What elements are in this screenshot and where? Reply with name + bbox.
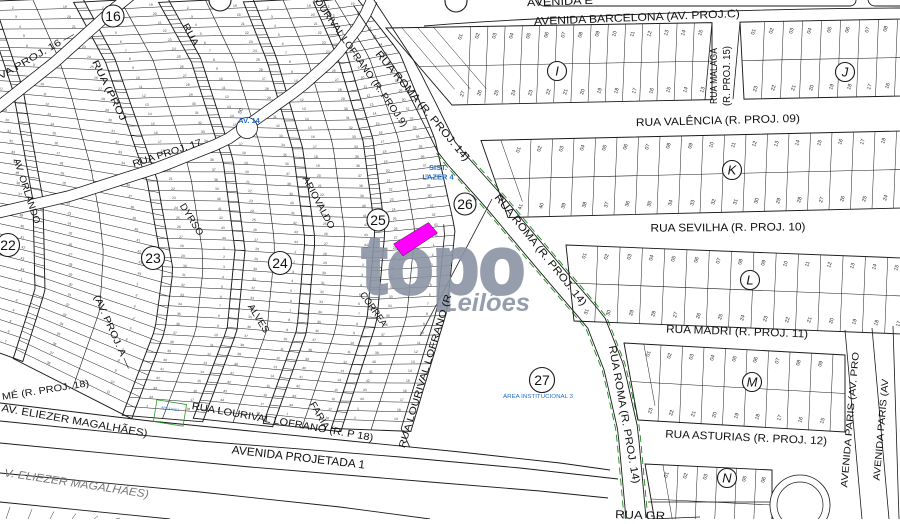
svg-text:I: I <box>555 64 559 79</box>
svg-text:24: 24 <box>87 55 91 59</box>
svg-text:43: 43 <box>153 386 157 390</box>
svg-text:SIST.: SIST. <box>429 163 447 172</box>
svg-text:10: 10 <box>283 337 287 341</box>
svg-text:12: 12 <box>142 94 146 98</box>
svg-text:38: 38 <box>287 182 291 186</box>
svg-text:25: 25 <box>252 218 256 222</box>
svg-text:40: 40 <box>428 194 432 198</box>
svg-text:18: 18 <box>314 155 318 159</box>
svg-text:31: 31 <box>182 273 186 277</box>
svg-text:16: 16 <box>193 389 197 393</box>
svg-text:31: 31 <box>111 129 115 133</box>
svg-text:26: 26 <box>180 65 184 69</box>
svg-text:35: 35 <box>283 153 287 157</box>
svg-text:10: 10 <box>214 333 218 337</box>
svg-text:35: 35 <box>418 144 422 149</box>
svg-text:21: 21 <box>314 22 318 26</box>
svg-text:32: 32 <box>115 140 119 145</box>
svg-text:13: 13 <box>203 361 207 365</box>
svg-text:19: 19 <box>233 4 237 8</box>
svg-text:31: 31 <box>252 277 256 281</box>
svg-text:RUA SEVILHA (R. PROJ. 10): RUA SEVILHA (R. PROJ. 10) <box>650 221 805 234</box>
svg-text:29: 29 <box>105 108 109 112</box>
svg-text:24: 24 <box>250 209 254 213</box>
svg-text:17: 17 <box>260 402 264 406</box>
svg-text:30: 30 <box>192 102 196 106</box>
svg-text:20: 20 <box>245 170 249 174</box>
svg-text:29: 29 <box>341 97 345 101</box>
svg-text:42: 42 <box>227 380 231 384</box>
svg-text:2: 2 <box>354 416 356 420</box>
svg-text:44: 44 <box>289 403 293 407</box>
svg-text:31: 31 <box>346 116 350 120</box>
svg-text:32: 32 <box>9 139 13 143</box>
svg-text:32: 32 <box>349 126 353 130</box>
svg-text:40: 40 <box>163 358 167 362</box>
svg-text:28: 28 <box>255 247 259 251</box>
svg-text:16: 16 <box>263 393 267 397</box>
svg-text:11: 11 <box>347 350 351 354</box>
svg-text:5: 5 <box>278 33 280 37</box>
svg-text:36: 36 <box>420 154 424 159</box>
svg-text:16: 16 <box>105 8 121 24</box>
svg-text:23: 23 <box>249 40 253 44</box>
svg-text:32: 32 <box>181 283 185 287</box>
svg-text:20: 20 <box>317 174 321 178</box>
svg-text:32: 32 <box>320 290 324 294</box>
svg-text:34: 34 <box>121 161 125 166</box>
svg-text:16: 16 <box>378 130 382 135</box>
svg-text:26: 26 <box>253 228 257 232</box>
svg-text:41: 41 <box>430 204 434 208</box>
svg-text:43: 43 <box>294 230 298 234</box>
svg-text:28: 28 <box>338 88 342 92</box>
svg-text:18: 18 <box>59 161 63 166</box>
svg-text:39: 39 <box>360 194 364 198</box>
svg-text:33: 33 <box>412 125 416 130</box>
svg-text:12: 12 <box>343 360 347 364</box>
svg-text:44: 44 <box>149 395 153 399</box>
svg-text:26: 26 <box>177 225 181 229</box>
svg-text:22: 22 <box>248 189 252 193</box>
svg-text:16: 16 <box>331 397 335 401</box>
svg-text:9: 9 <box>216 67 218 71</box>
svg-text:K: K <box>728 163 738 178</box>
svg-text:17: 17 <box>895 320 900 327</box>
svg-text:(R. PROJ. 15): (R. PROJ. 15) <box>722 46 733 106</box>
svg-text:AV. 14: AV. 14 <box>238 116 261 125</box>
svg-text:20: 20 <box>386 169 390 173</box>
svg-text:13: 13 <box>227 105 231 109</box>
svg-text:17: 17 <box>239 142 243 146</box>
svg-text:27: 27 <box>254 238 258 242</box>
svg-text:20: 20 <box>237 13 241 17</box>
svg-text:39: 39 <box>305 357 309 361</box>
svg-text:39: 39 <box>237 352 241 356</box>
svg-text:14: 14 <box>200 370 204 374</box>
svg-text:33: 33 <box>180 293 184 297</box>
svg-text:19: 19 <box>350 1 354 6</box>
svg-text:24: 24 <box>272 255 288 271</box>
svg-text:24: 24 <box>172 47 176 51</box>
svg-text:42: 42 <box>296 384 300 388</box>
svg-text:16: 16 <box>311 135 315 139</box>
svg-text:43: 43 <box>223 389 227 393</box>
svg-text:27: 27 <box>534 372 550 388</box>
svg-text:11: 11 <box>280 347 284 351</box>
svg-text:6: 6 <box>358 302 360 306</box>
svg-text:31: 31 <box>7 129 11 133</box>
svg-text:31: 31 <box>405 106 409 111</box>
svg-text:15: 15 <box>266 384 270 388</box>
svg-text:7: 7 <box>209 49 211 53</box>
svg-text:11: 11 <box>222 86 226 90</box>
svg-text:4: 4 <box>222 275 224 279</box>
svg-text:43: 43 <box>363 388 367 392</box>
svg-text:25: 25 <box>177 55 181 59</box>
svg-text:3: 3 <box>223 265 225 269</box>
svg-text:13: 13 <box>369 102 373 107</box>
svg-text:N: N <box>722 471 732 486</box>
svg-text:35: 35 <box>177 312 181 316</box>
svg-text:38: 38 <box>170 340 174 344</box>
svg-text:24: 24 <box>253 49 257 53</box>
svg-text:41: 41 <box>291 211 295 215</box>
svg-text:23: 23 <box>249 199 253 203</box>
svg-text:8: 8 <box>289 60 291 64</box>
svg-text:12: 12 <box>414 350 418 354</box>
svg-text:39: 39 <box>215 187 219 191</box>
svg-text:39: 39 <box>427 184 431 188</box>
svg-text:21: 21 <box>169 177 173 181</box>
svg-text:10: 10 <box>219 77 223 81</box>
svg-text:16: 16 <box>54 141 58 146</box>
svg-text:3: 3 <box>271 15 273 19</box>
svg-text:40: 40 <box>290 201 294 205</box>
svg-text:26: 26 <box>457 196 473 212</box>
svg-text:9: 9 <box>291 70 293 74</box>
svg-text:17: 17 <box>400 398 404 402</box>
svg-text:19: 19 <box>63 5 67 9</box>
svg-text:14: 14 <box>270 374 274 378</box>
svg-text:25: 25 <box>370 212 386 228</box>
svg-text:33: 33 <box>250 296 254 300</box>
svg-text:41: 41 <box>218 207 222 211</box>
svg-text:15: 15 <box>406 379 410 383</box>
svg-text:35: 35 <box>386 314 390 318</box>
svg-text:40: 40 <box>372 360 376 364</box>
svg-text:L: L <box>746 273 753 288</box>
svg-text:18: 18 <box>397 408 401 412</box>
svg-text:14: 14 <box>337 378 341 382</box>
svg-text:43: 43 <box>221 226 225 230</box>
svg-text:12: 12 <box>276 356 280 360</box>
svg-text:15: 15 <box>375 121 379 126</box>
svg-text:30: 30 <box>344 107 348 111</box>
svg-text:19: 19 <box>149 3 153 7</box>
svg-text:37: 37 <box>423 164 427 168</box>
svg-text:7: 7 <box>285 51 287 55</box>
svg-text:LAZER 4: LAZER 4 <box>422 173 454 182</box>
svg-text:4: 4 <box>274 24 276 28</box>
svg-text:41: 41 <box>299 375 303 379</box>
svg-text:M: M <box>747 375 758 390</box>
svg-text:34: 34 <box>318 310 322 314</box>
svg-text:22: 22 <box>389 188 393 192</box>
svg-text:44: 44 <box>294 240 298 244</box>
svg-text:11: 11 <box>139 85 143 89</box>
svg-text:11: 11 <box>43 92 47 96</box>
svg-text:2: 2 <box>187 6 189 10</box>
svg-text:28: 28 <box>101 97 105 101</box>
svg-text:27: 27 <box>179 235 183 239</box>
svg-text:2: 2 <box>223 255 225 259</box>
svg-text:17: 17 <box>56 151 60 156</box>
svg-text:29: 29 <box>323 261 327 265</box>
svg-text:5: 5 <box>23 34 25 38</box>
svg-text:27: 27 <box>0 87 3 91</box>
svg-text:38: 38 <box>378 342 382 346</box>
svg-text:29: 29 <box>181 254 185 258</box>
svg-text:35: 35 <box>355 155 359 159</box>
svg-text:33: 33 <box>319 300 323 304</box>
svg-text:10: 10 <box>136 76 140 80</box>
svg-text:15: 15 <box>197 379 201 383</box>
svg-text:44: 44 <box>360 397 364 401</box>
svg-text:42: 42 <box>432 213 436 217</box>
svg-text:28: 28 <box>323 252 327 256</box>
svg-text:13: 13 <box>145 103 149 107</box>
svg-text:19: 19 <box>307 4 311 8</box>
svg-text:30: 30 <box>183 264 187 268</box>
svg-text:34: 34 <box>281 143 285 147</box>
svg-text:26: 26 <box>332 69 336 73</box>
svg-text:33: 33 <box>279 134 283 138</box>
svg-text:16: 16 <box>403 389 407 393</box>
svg-text:17: 17 <box>313 145 317 149</box>
svg-text:39: 39 <box>167 349 171 353</box>
svg-text:13: 13 <box>273 365 277 369</box>
svg-text:5: 5 <box>115 31 117 35</box>
svg-text:33: 33 <box>11 150 15 155</box>
svg-text:23: 23 <box>390 198 394 202</box>
svg-text:12: 12 <box>45 102 49 106</box>
svg-text:32: 32 <box>276 124 280 128</box>
svg-text:1: 1 <box>357 407 359 411</box>
svg-text:38: 38 <box>308 348 312 352</box>
svg-text:14: 14 <box>305 117 309 121</box>
svg-text:31: 31 <box>321 281 325 285</box>
svg-text:41: 41 <box>369 370 373 374</box>
svg-text:32: 32 <box>251 286 255 290</box>
svg-text:18: 18 <box>186 407 190 411</box>
svg-text:23: 23 <box>168 38 172 42</box>
svg-text:2: 2 <box>12 6 14 10</box>
svg-text:24: 24 <box>326 50 330 54</box>
svg-text:36: 36 <box>176 322 180 326</box>
svg-text:23: 23 <box>172 196 176 200</box>
svg-text:18: 18 <box>242 151 246 155</box>
svg-text:37: 37 <box>212 168 216 172</box>
svg-text:37: 37 <box>173 331 177 335</box>
svg-text:3: 3 <box>15 15 17 19</box>
svg-text:20: 20 <box>67 15 71 19</box>
svg-text:14: 14 <box>148 112 152 116</box>
svg-text:33: 33 <box>118 150 122 155</box>
svg-text:4: 4 <box>195 23 197 27</box>
svg-text:19: 19 <box>383 159 387 164</box>
svg-text:8: 8 <box>129 57 131 61</box>
svg-text:8: 8 <box>213 58 215 62</box>
svg-text:34: 34 <box>178 302 182 306</box>
svg-text:29: 29 <box>254 257 258 261</box>
svg-text:15: 15 <box>308 126 312 130</box>
svg-text:9: 9 <box>423 322 425 326</box>
svg-text:30: 30 <box>5 118 9 122</box>
svg-text:35: 35 <box>317 320 321 324</box>
svg-text:40: 40 <box>302 366 306 370</box>
svg-text:27: 27 <box>262 77 266 81</box>
svg-text:42: 42 <box>366 379 370 383</box>
svg-text:14: 14 <box>408 369 412 373</box>
svg-text:17: 17 <box>328 407 332 411</box>
svg-text:43: 43 <box>292 394 296 398</box>
svg-text:9: 9 <box>132 66 134 70</box>
svg-text:38: 38 <box>214 178 218 182</box>
svg-text:RUA MALAGA: RUA MALAGA <box>709 48 720 104</box>
svg-text:22: 22 <box>163 29 167 33</box>
svg-text:36: 36 <box>247 325 251 329</box>
svg-text:14: 14 <box>50 122 54 126</box>
svg-text:13: 13 <box>411 360 415 364</box>
svg-text:40: 40 <box>362 204 366 208</box>
svg-text:6: 6 <box>220 295 222 299</box>
svg-text:18: 18 <box>382 149 386 154</box>
svg-text:44: 44 <box>220 398 224 402</box>
svg-text:40: 40 <box>217 197 221 201</box>
svg-text:37: 37 <box>312 338 316 342</box>
svg-text:36: 36 <box>285 162 289 166</box>
svg-text:25: 25 <box>256 58 260 62</box>
svg-text:6: 6 <box>204 41 206 45</box>
svg-text:42: 42 <box>219 216 223 220</box>
svg-text:37: 37 <box>358 174 362 178</box>
svg-text:26: 26 <box>324 232 328 236</box>
svg-text:11: 11 <box>417 341 421 345</box>
svg-text:36: 36 <box>356 164 360 168</box>
svg-text:29: 29 <box>189 93 193 97</box>
svg-text:12: 12 <box>207 352 211 356</box>
svg-text:37: 37 <box>244 334 248 338</box>
svg-text:19: 19 <box>316 164 320 168</box>
svg-text:22: 22 <box>245 31 249 35</box>
svg-text:28: 28 <box>265 87 269 91</box>
svg-text:17: 17 <box>380 139 384 144</box>
svg-text:30: 30 <box>253 267 257 271</box>
svg-text:J: J <box>841 65 849 80</box>
svg-text:15: 15 <box>334 388 338 392</box>
svg-text:14: 14 <box>230 114 234 118</box>
svg-text:33: 33 <box>201 130 205 134</box>
svg-text:ÁREA INSTITUCIONAL 3: ÁREA INSTITUCIONAL 3 <box>503 393 573 400</box>
svg-text:31: 31 <box>273 115 277 119</box>
svg-text:14: 14 <box>372 111 376 116</box>
svg-text:40: 40 <box>234 362 238 366</box>
svg-text:6: 6 <box>26 44 28 48</box>
svg-text:25: 25 <box>176 216 180 220</box>
svg-text:32: 32 <box>409 116 413 121</box>
svg-text:3: 3 <box>191 15 193 19</box>
svg-text:7: 7 <box>219 304 221 308</box>
svg-text:31: 31 <box>195 111 199 115</box>
svg-text:21: 21 <box>387 179 391 183</box>
svg-text:28: 28 <box>186 83 190 87</box>
svg-text:4: 4 <box>19 25 21 29</box>
svg-text:32: 32 <box>198 121 202 125</box>
svg-text:37: 37 <box>286 172 290 176</box>
svg-text:27: 27 <box>183 74 187 78</box>
svg-text:36: 36 <box>210 158 214 162</box>
svg-text:15: 15 <box>52 131 56 136</box>
svg-text:12: 12 <box>300 98 304 102</box>
svg-text:42: 42 <box>156 376 160 380</box>
svg-text:15: 15 <box>151 122 155 126</box>
svg-text:5: 5 <box>200 32 202 36</box>
svg-text:12: 12 <box>225 95 229 99</box>
svg-text:38: 38 <box>359 184 363 188</box>
svg-text:37: 37 <box>381 333 385 337</box>
svg-text:36: 36 <box>315 329 319 333</box>
svg-text:16: 16 <box>154 131 158 135</box>
svg-text:44: 44 <box>222 236 226 240</box>
svg-text:24: 24 <box>392 208 396 212</box>
svg-text:21: 21 <box>318 184 322 188</box>
svg-text:13: 13 <box>47 112 51 116</box>
svg-text:42: 42 <box>293 221 297 225</box>
svg-text:13: 13 <box>302 107 306 111</box>
svg-text:22: 22 <box>0 237 16 253</box>
svg-text:26: 26 <box>259 68 263 72</box>
svg-text:10: 10 <box>350 341 354 345</box>
svg-text:38: 38 <box>240 343 244 347</box>
svg-text:27: 27 <box>335 78 339 82</box>
svg-text:23: 23 <box>322 41 326 45</box>
svg-text:22: 22 <box>318 31 322 35</box>
svg-text:20: 20 <box>153 12 157 16</box>
svg-text:34: 34 <box>354 145 358 149</box>
svg-text:21: 21 <box>241 22 245 26</box>
svg-text:27: 27 <box>324 242 328 246</box>
svg-text:21: 21 <box>72 25 76 29</box>
svg-text:6: 6 <box>120 40 122 44</box>
svg-text:1: 1 <box>223 246 225 250</box>
svg-text:29: 29 <box>267 96 271 100</box>
svg-text:Leilões: Leilões <box>442 289 530 317</box>
svg-text:11: 11 <box>210 343 214 347</box>
svg-text:28: 28 <box>180 244 184 248</box>
svg-text:39: 39 <box>375 351 379 355</box>
svg-text:20: 20 <box>311 13 315 17</box>
svg-text:23: 23 <box>145 250 161 266</box>
svg-text:30: 30 <box>108 118 112 122</box>
svg-text:34: 34 <box>415 134 419 139</box>
svg-text:21: 21 <box>246 180 250 184</box>
svg-text:33: 33 <box>352 135 356 139</box>
svg-text:7: 7 <box>358 312 360 316</box>
svg-text:19: 19 <box>244 161 248 165</box>
svg-text:2: 2 <box>267 6 269 10</box>
svg-text:41: 41 <box>363 214 367 218</box>
